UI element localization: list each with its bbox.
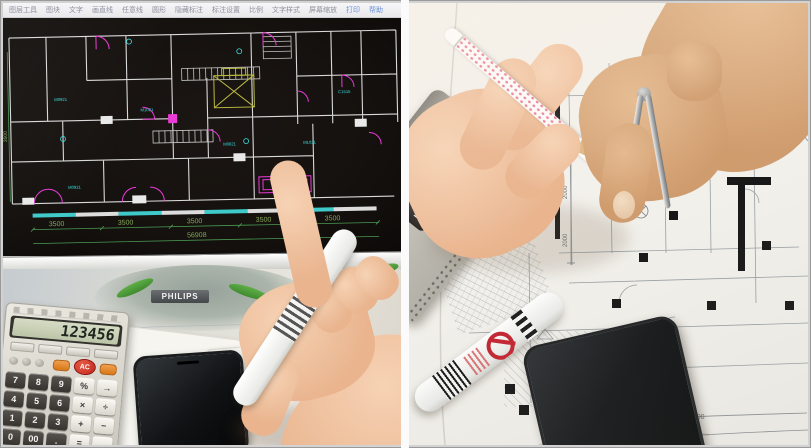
- dim-label: 3500: [256, 217, 272, 224]
- memory-key: [9, 356, 19, 365]
- cad-screen: M0921 M1021 M0821 C1515 M0921 M1021: [3, 18, 401, 256]
- function-key: [94, 349, 119, 360]
- orange-key: [52, 359, 70, 371]
- menu-item: 比例: [249, 5, 263, 15]
- menu-item: 文字: [69, 5, 83, 15]
- smartphone: [133, 349, 250, 445]
- function-key: [66, 346, 91, 357]
- dim-label: 3500: [187, 218, 203, 225]
- calc-key: 7: [5, 371, 26, 389]
- door-tag: M0921: [54, 97, 68, 102]
- calc-key: ÷: [95, 398, 116, 416]
- calc-key: 00: [23, 430, 44, 445]
- function-key: [38, 344, 63, 355]
- ac-key: AC: [73, 358, 96, 376]
- left-photo-cad-monitor: 图层工具 图块 文字 画直线 任意线 圆形 隐藏标注 标注设置 比例 文字样式 …: [3, 3, 401, 445]
- calc-key: 2: [24, 411, 45, 429]
- door-tag: M0821: [223, 141, 237, 146]
- calc-key: 6: [49, 394, 70, 412]
- doors-magenta: [31, 30, 382, 203]
- calc-key: 1: [3, 409, 23, 427]
- walls: [9, 30, 399, 204]
- calc-key: +: [70, 415, 91, 433]
- menu-item: 任意线: [122, 5, 143, 15]
- calc-key: .: [46, 432, 67, 445]
- calc-key: %: [74, 377, 95, 395]
- menu-item: 隐藏标注: [175, 5, 203, 15]
- photo-collage: 图层工具 图块 文字 画直线 任意线 圆形 隐藏标注 标注设置 比例 文字样式 …: [0, 0, 811, 448]
- calc-key: 5: [26, 392, 47, 410]
- elevator-shaft: [214, 68, 255, 108]
- calc-key: ×: [72, 396, 93, 414]
- room-tags: M0921 M1021 M0821 C1515 M0921 M1021: [53, 34, 353, 190]
- floorplan-drawing: M0921 M1021 M0821 C1515 M0921 M1021: [3, 18, 401, 256]
- photo-divider: [401, 0, 409, 448]
- menu-item: 文字样式: [272, 5, 300, 15]
- calc-key: [91, 436, 112, 445]
- philips-logo: PHILIPS: [151, 290, 209, 303]
- cad-menubar: 图层工具 图块 文字 画直线 任意线 圆形 隐藏标注 标注设置 比例 文字样式 …: [3, 3, 401, 18]
- memory-key: [22, 358, 32, 367]
- calc-key: =: [69, 434, 90, 445]
- phone-speaker: [177, 360, 199, 365]
- dim-label: 3500: [325, 215, 341, 222]
- calc-key: 3: [47, 413, 68, 431]
- dimension-rows: 3500 3500 3500 3500 3500 56908 3500: [3, 44, 380, 244]
- menu-item: 屏幕缩放: [309, 5, 337, 15]
- marker-red-text: [462, 347, 490, 375]
- calc-key: 9: [51, 375, 72, 393]
- calc-key: 0: [3, 428, 21, 445]
- calc-key: −: [93, 417, 114, 435]
- marker-checker-band: [510, 309, 538, 341]
- calc-key: 8: [28, 373, 49, 391]
- calculator: 123456 AC 7 8 9 % →: [3, 302, 130, 445]
- menu-item: 图块: [46, 5, 60, 15]
- menu-item: 打印: [346, 5, 360, 15]
- menu-item: 标注设置: [212, 5, 240, 15]
- door-tag: C1515: [338, 89, 351, 94]
- thumb-nail: [613, 191, 635, 219]
- knuckle: [667, 41, 722, 101]
- right-photo-blueprints: 2000 2000 9000 30700 0 0 1 4: [409, 3, 808, 445]
- menu-item: 画直线: [92, 5, 113, 15]
- orange-key: [99, 363, 117, 375]
- function-key: [10, 341, 35, 352]
- calculator-keypad: 7 8 9 % → 4 5 6 × ÷ 1 2 3 + − 0 00 . =: [3, 371, 118, 445]
- calc-key: 4: [3, 390, 24, 408]
- memory-key: [35, 359, 45, 368]
- menu-item: 图层工具: [9, 5, 37, 15]
- door-tag: M1021: [140, 107, 154, 112]
- vertical-dim-label: 3500: [3, 131, 9, 142]
- door-tag: M0921: [68, 185, 82, 190]
- menu-item: 圆形: [152, 5, 166, 15]
- calc-key: →: [96, 379, 117, 397]
- dim-label: 3500: [118, 219, 134, 226]
- calculator-display: 123456: [12, 318, 120, 345]
- total-dim-label: 56908: [187, 232, 207, 239]
- menu-item: 帮助: [369, 5, 383, 15]
- dim-label: 3500: [49, 221, 65, 228]
- door-tag: M1021: [303, 140, 317, 145]
